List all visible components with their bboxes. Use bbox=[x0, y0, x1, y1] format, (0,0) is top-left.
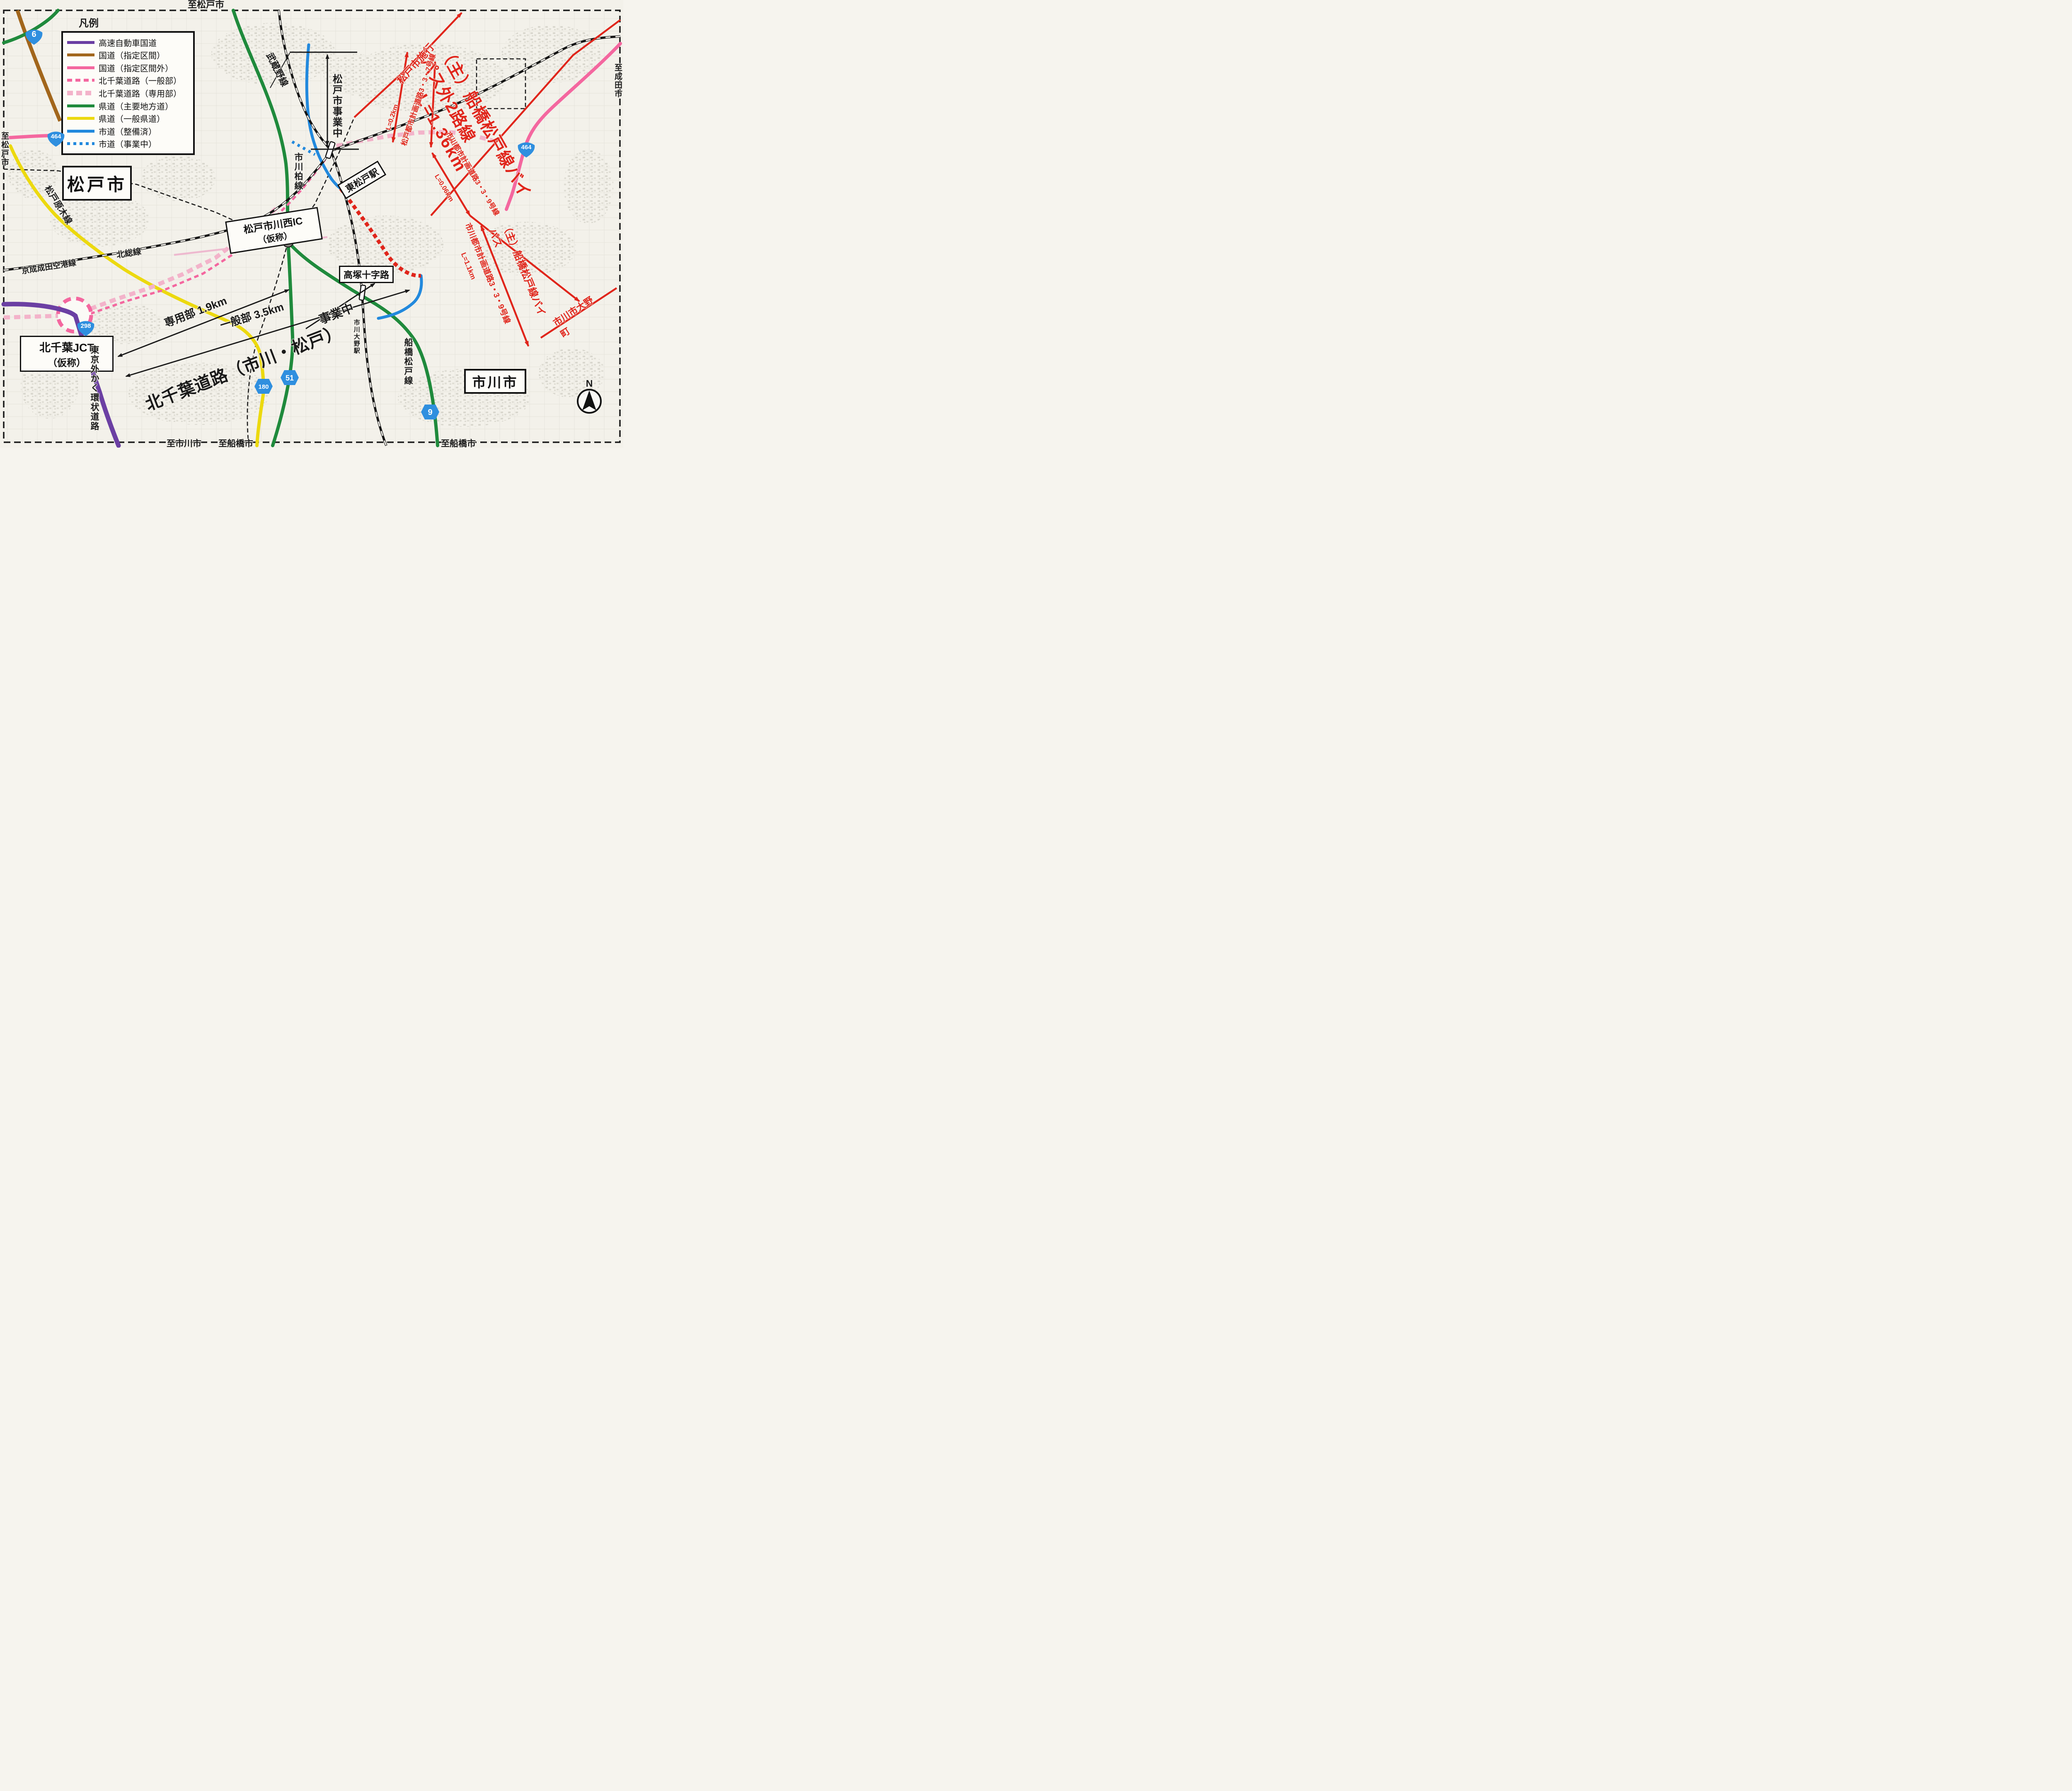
legend-chip-expressway bbox=[67, 41, 94, 44]
city-label-matsudo: 松戸市 bbox=[67, 171, 127, 196]
legend-item-expressway: 高速自動車国道 bbox=[67, 37, 189, 48]
legend-chip-national-designated bbox=[67, 53, 94, 56]
legend-label: 北千葉道路（一般部） bbox=[99, 74, 182, 86]
label-ichikawa-kashiwa-road: 市川柏線 bbox=[293, 153, 303, 191]
shield-number: 180 bbox=[254, 378, 273, 395]
label-ichikawa-ono-station: 市川大野駅 bbox=[353, 319, 360, 354]
shield-number: 6 bbox=[24, 28, 44, 45]
pref-shield-180: 180 bbox=[254, 378, 273, 395]
takatsuka-label: 高塚十字路 bbox=[344, 270, 389, 280]
legend-label: 市道（整備済） bbox=[99, 125, 157, 137]
route-shield-6: 6 bbox=[24, 28, 44, 45]
legend-item-pref-general: 県道（一般県道） bbox=[67, 113, 189, 124]
pref-shield-51: 51 bbox=[280, 369, 299, 387]
edge-label-to-matsudo-top: 至松戸市 bbox=[188, 0, 224, 10]
legend-label: 北千葉道路（専用部） bbox=[99, 87, 182, 99]
legend-title: 凡例 bbox=[79, 18, 99, 29]
shield-number: 298 bbox=[76, 319, 95, 337]
legend-item-pref-major: 県道（主要地方道） bbox=[67, 100, 189, 111]
shield-number: 51 bbox=[280, 369, 299, 387]
route-shield-298: 298 bbox=[76, 319, 95, 337]
city-box-matsudo: 松戸市 bbox=[62, 166, 132, 201]
shield-number: 9 bbox=[421, 404, 440, 421]
pref-shield-9: 9 bbox=[421, 404, 440, 421]
label-tokyo-gaikan-road: 東京外かく環状道路 bbox=[90, 345, 99, 431]
legend-chip-city-planned bbox=[67, 142, 94, 145]
north-compass-icon bbox=[578, 390, 601, 413]
label-matsudo-city-construction: 松戸市事業中 bbox=[331, 74, 341, 138]
legend-label: 国道（指定区間） bbox=[99, 49, 165, 61]
north-label: N bbox=[586, 378, 593, 388]
edge-label-to-funabashi-bottom-right: 至船橋市 bbox=[441, 439, 476, 448]
label-funabashi-matsudo-road: 船橋松戸線 bbox=[403, 338, 412, 385]
edge-label-to-matsudo-left: 至松戸市 bbox=[0, 132, 8, 167]
legend-item-national-designated: 国道（指定区間） bbox=[67, 50, 189, 61]
edge-label-to-funabashi-bottom-center: 至船橋市 bbox=[218, 439, 253, 448]
legend-label: 県道（一般県道） bbox=[99, 112, 165, 124]
legend-chip-national-other bbox=[67, 66, 94, 69]
legend-label: 高速自動車国道 bbox=[99, 36, 157, 48]
shield-number: 464 bbox=[517, 141, 536, 158]
legend-item-kitachiba-senyobu: 北千葉道路（専用部） bbox=[67, 87, 189, 98]
legend-chip-kitachiba-ippanbu bbox=[67, 79, 94, 82]
legend-chip-kitachiba-senyobu bbox=[67, 91, 94, 95]
route-shield-464-left: 464 bbox=[46, 130, 65, 147]
map-canvas: 凡例 高速自動車国道 国道（指定区間） 国道（指定区間外） 北千葉道路（一般部）… bbox=[0, 0, 623, 448]
legend-chip-pref-general bbox=[67, 117, 94, 120]
shield-number: 464 bbox=[46, 130, 65, 147]
legend-label: 国道（指定区間外） bbox=[99, 62, 173, 74]
city-box-ichikawa: 市川市 bbox=[464, 369, 526, 394]
legend-item-city-planned: 市道（事業中） bbox=[67, 138, 189, 149]
legend-item-national-other: 国道（指定区間外） bbox=[67, 62, 189, 73]
edge-label-to-narita-right: 至成田市 bbox=[613, 63, 622, 98]
takatsuka-crossing-box: 高塚十字路 bbox=[339, 266, 394, 283]
legend-box: 高速自動車国道 国道（指定区間） 国道（指定区間外） 北千葉道路（一般部） 北千… bbox=[61, 31, 195, 155]
legend-label: 市道（事業中） bbox=[99, 138, 157, 150]
legend-item-city-done: 市道（整備済） bbox=[67, 126, 189, 136]
legend-label: 県道（主要地方道） bbox=[99, 100, 173, 112]
legend-item-kitachiba-ippanbu: 北千葉道路（一般部） bbox=[67, 75, 189, 86]
legend-chip-pref-major bbox=[67, 104, 94, 107]
route-shield-464-right: 464 bbox=[517, 141, 536, 158]
city-label-ichikawa: 市川市 bbox=[472, 371, 518, 391]
jct-box-kitachiba: 北千葉JCT （仮称） bbox=[20, 336, 114, 372]
edge-label-to-ichikawa-bottom: 至市川市 bbox=[167, 439, 201, 448]
legend-chip-city-done bbox=[67, 130, 94, 133]
